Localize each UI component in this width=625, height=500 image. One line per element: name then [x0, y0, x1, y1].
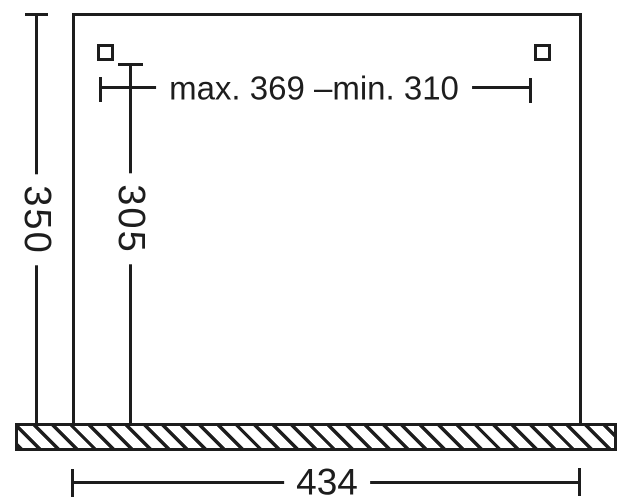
mounting-hole-left	[97, 44, 114, 61]
dim-inner-height-top-cap	[118, 63, 143, 66]
dim-top-span-tick-left	[99, 77, 102, 102]
dim-inner-height-label: 305	[112, 173, 150, 264]
mounting-hole-right	[534, 44, 551, 61]
dim-left-height-label: 350	[18, 174, 56, 265]
dim-top-span-label: max. 369 –min. 310	[156, 72, 472, 105]
wall-section-hatched	[15, 423, 617, 451]
installation-dimension-diagram: 350 305 max. 369 –min. 310 434	[0, 0, 625, 500]
dim-base-width-tick-left	[71, 469, 74, 497]
dim-base-width-tick-right	[578, 468, 581, 496]
dim-base-width-label: 434	[284, 464, 370, 500]
dim-left-height-top-cap	[25, 13, 48, 16]
dim-top-span-tick-right	[529, 78, 532, 103]
